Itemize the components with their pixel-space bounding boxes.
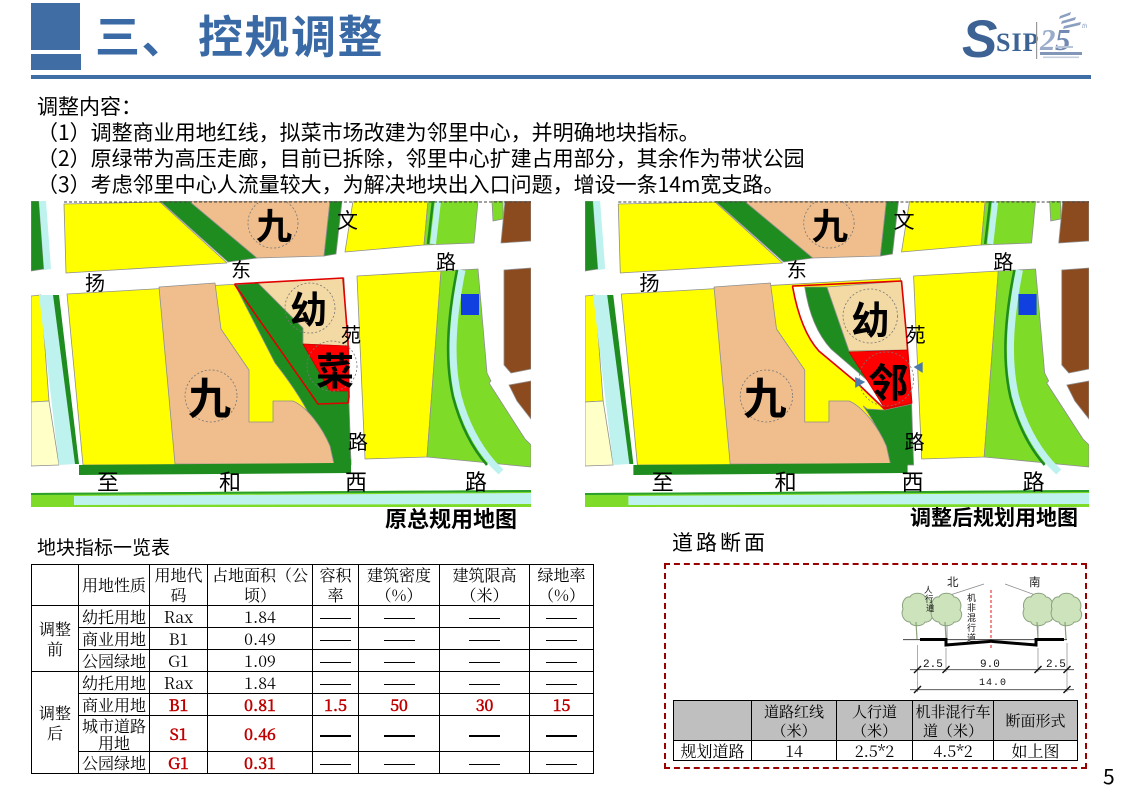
svg-text:SIP: SIP xyxy=(996,28,1039,57)
svg-text:路: 路 xyxy=(993,246,1013,275)
svg-text:th: th xyxy=(1082,20,1088,30)
svg-text:和: 和 xyxy=(775,465,797,497)
svg-text:2: 2 xyxy=(1039,22,1056,57)
svg-text:西: 西 xyxy=(345,465,367,497)
svg-text:至: 至 xyxy=(97,465,119,497)
svg-text:路: 路 xyxy=(465,465,487,497)
svg-text:九: 九 xyxy=(743,365,786,427)
svg-text:邻: 邻 xyxy=(868,350,908,409)
svg-text:扬: 扬 xyxy=(85,267,105,296)
svg-text:扬: 扬 xyxy=(639,267,659,296)
svg-text:和: 和 xyxy=(219,465,241,497)
svg-text:路: 路 xyxy=(436,246,456,275)
svg-text:九: 九 xyxy=(256,201,292,250)
svg-text:S: S xyxy=(962,10,997,69)
svg-text:幼: 幼 xyxy=(290,280,327,334)
svg-text:九: 九 xyxy=(188,365,231,427)
svg-text:至: 至 xyxy=(652,465,674,497)
svg-text:苑: 苑 xyxy=(906,319,926,348)
svg-text:菜: 菜 xyxy=(316,341,354,396)
svg-text:东: 东 xyxy=(787,254,807,283)
svg-text:幼: 幼 xyxy=(851,290,889,345)
svg-text:路: 路 xyxy=(1022,465,1044,497)
svg-text:文: 文 xyxy=(337,205,358,235)
svg-text:东: 东 xyxy=(231,254,251,283)
svg-text:九: 九 xyxy=(812,201,848,250)
svg-text:路: 路 xyxy=(348,426,368,455)
svg-text:西: 西 xyxy=(902,465,924,497)
svg-text:文: 文 xyxy=(893,205,914,235)
svg-text:路: 路 xyxy=(905,426,925,455)
